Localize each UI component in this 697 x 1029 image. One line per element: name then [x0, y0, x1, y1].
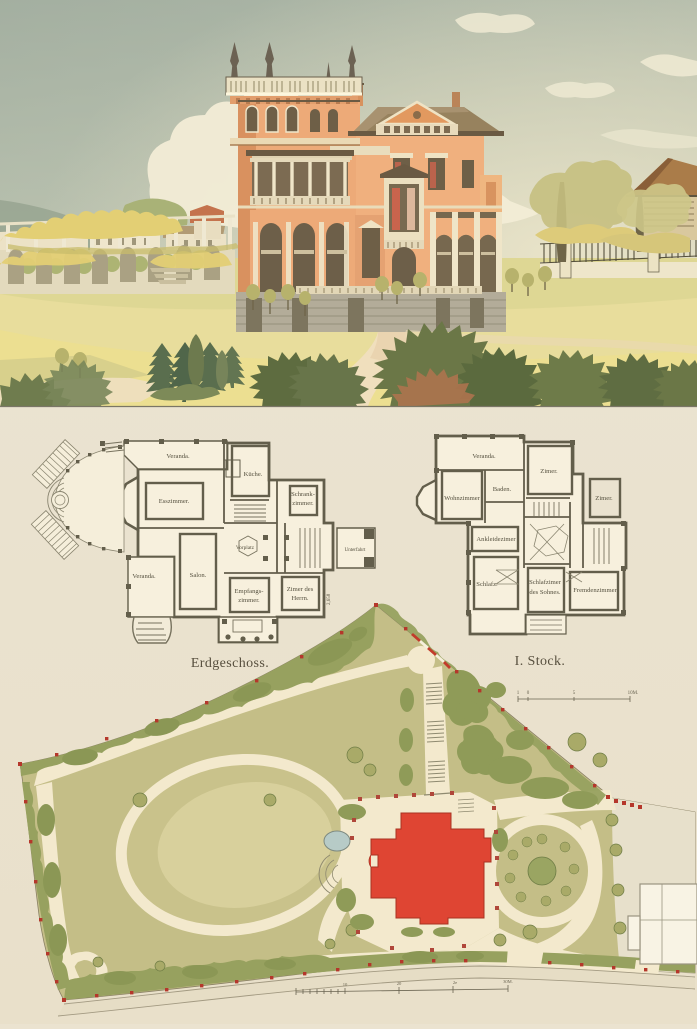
svg-text:20: 20 — [397, 981, 402, 986]
svg-text:Zimer.: Zimer. — [595, 495, 613, 502]
svg-text:Unterfahrt: Unterfahrt — [345, 548, 366, 553]
svg-text:Baden.: Baden. — [493, 486, 512, 493]
svg-text:Küche.: Küche. — [244, 471, 263, 478]
svg-text:Veranda.: Veranda. — [472, 453, 496, 460]
svg-text:Vorplatz: Vorplatz — [236, 545, 255, 551]
svg-text:10: 10 — [343, 982, 348, 987]
svg-text:Herrn.: Herrn. — [291, 595, 308, 602]
svg-text:I. Stock.: I. Stock. — [515, 654, 566, 669]
svg-text:zimmer.: zimmer. — [292, 500, 314, 507]
svg-text:Salon.: Salon. — [190, 572, 207, 579]
svg-text:Empfangs-: Empfangs- — [235, 588, 264, 595]
svg-text:Wohnzimmer: Wohnzimmer — [444, 495, 481, 502]
svg-text:Esszimmer.: Esszimmer. — [159, 498, 190, 505]
svg-text:Schrank-: Schrank- — [291, 491, 315, 498]
svg-text:Schlafzimer: Schlafzimer — [529, 579, 562, 586]
svg-text:10M.: 10M. — [628, 691, 639, 696]
svg-text:Erdgeschoss.: Erdgeschoss. — [191, 656, 269, 671]
svg-text:2,658: 2,658 — [327, 593, 332, 605]
svg-text:zimmer.: zimmer. — [238, 597, 260, 604]
svg-text:des Sohnes.: des Sohnes. — [529, 589, 560, 596]
svg-text:Fremdenzimmer: Fremdenzimmer — [573, 587, 617, 594]
svg-text:Zimer des: Zimer des — [287, 586, 314, 593]
svg-text:Schlafz.: Schlafz. — [476, 581, 498, 588]
svg-text:Veranda.: Veranda. — [132, 573, 156, 580]
svg-text:Veranda.: Veranda. — [166, 453, 190, 460]
svg-text:Ankleidezimer: Ankleidezimer — [476, 536, 516, 543]
svg-text:Zimer.: Zimer. — [540, 468, 558, 475]
svg-text:30M.: 30M. — [503, 979, 513, 984]
svg-text:2e: 2e — [453, 980, 457, 985]
